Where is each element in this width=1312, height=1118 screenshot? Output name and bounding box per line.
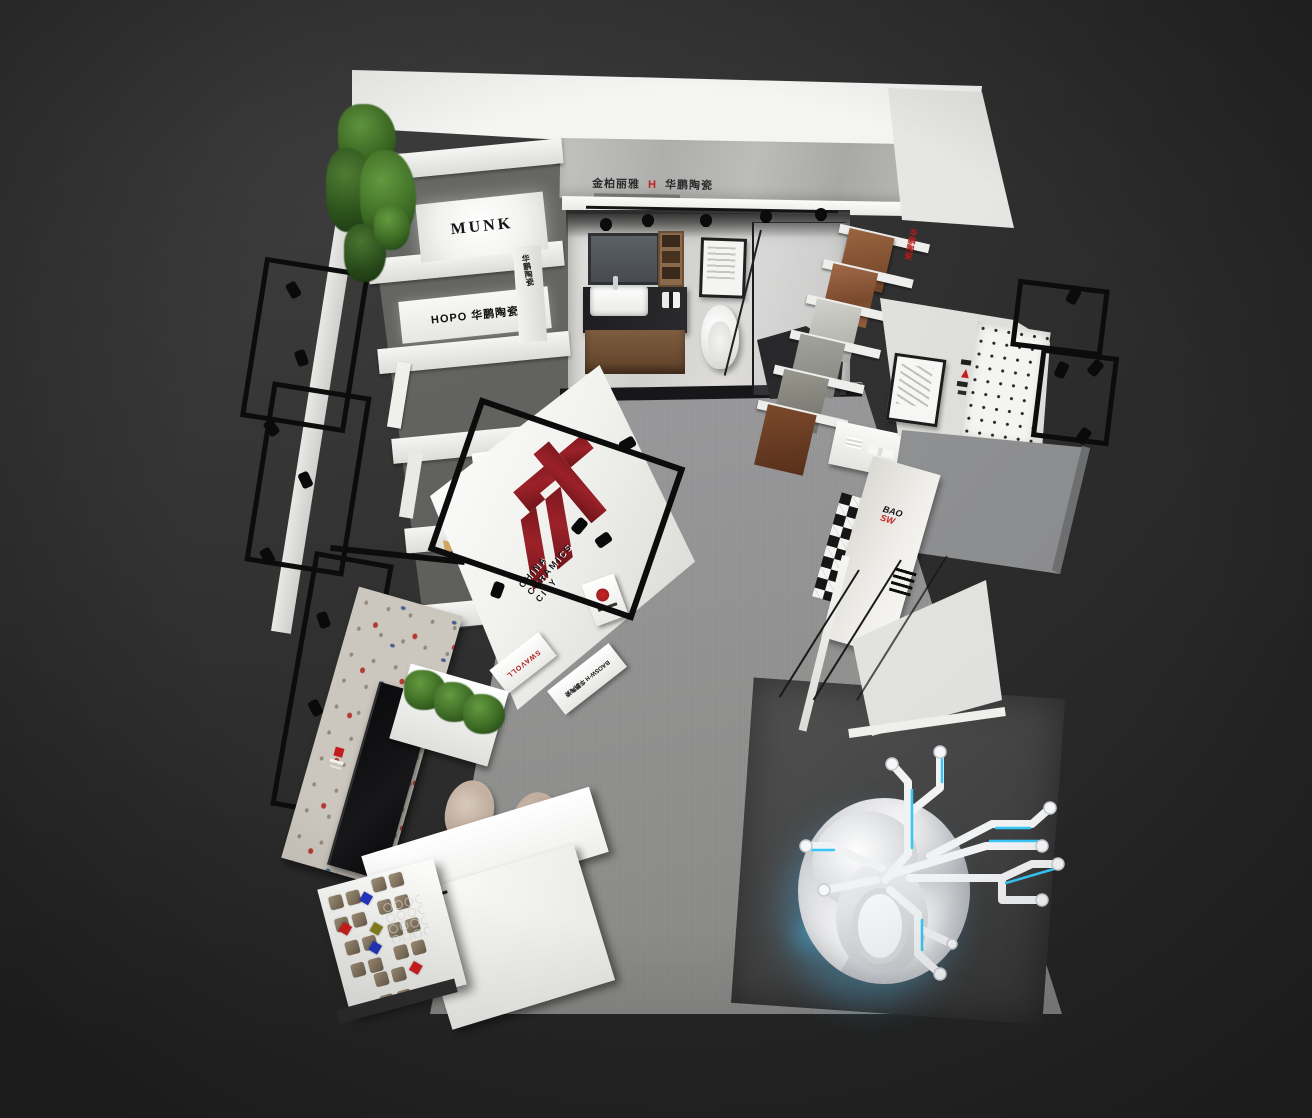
- wall-logo-bar: [330, 765, 341, 770]
- stone-tile: [409, 938, 429, 958]
- wall-logo-mark: [333, 747, 344, 758]
- vanity-basin: [590, 286, 648, 316]
- spotlight-can: [600, 218, 612, 230]
- vanity-mirror: [588, 233, 660, 285]
- header-sign: 金柏丽雅 H 华鹏陶瓷: [592, 175, 713, 193]
- spotlight-can: [700, 214, 712, 226]
- bathroom-framed-art: [699, 237, 747, 299]
- stone-tile: [349, 960, 369, 980]
- planter-plant: [463, 694, 505, 734]
- right-room-framed-art: [886, 353, 947, 428]
- vanity-shelf-cubbies: [658, 231, 684, 287]
- header-sign-right: 华鹏陶瓷: [665, 179, 713, 192]
- art-sketch: [896, 364, 933, 408]
- header-sign-left: 金柏丽雅: [592, 178, 640, 191]
- art-sketch: [707, 246, 736, 279]
- spotlight-can: [760, 210, 772, 222]
- track-light-rig: [1010, 279, 1110, 358]
- hanging-vine: [374, 204, 410, 250]
- cubby-cell: [662, 251, 680, 263]
- stone-tile: [369, 875, 389, 895]
- stone-tile: [350, 910, 370, 930]
- stone-tile: [326, 892, 346, 912]
- showroom-render: 金柏丽雅 H 华鹏陶瓷 MUNK: [0, 0, 1312, 1118]
- track-light-rig: [1031, 348, 1119, 447]
- pillar-vertical-text: 华鹏陶瓷: [520, 253, 536, 286]
- cubby-cell: [662, 235, 680, 247]
- stone-tile: [343, 938, 363, 958]
- stone-tile: [387, 870, 407, 890]
- branch-pipes: [790, 728, 1090, 988]
- toiletry-bottles: [662, 292, 680, 308]
- stone-tile: [391, 942, 411, 962]
- header-sign-mark: H: [648, 179, 657, 191]
- stone-tile: [389, 965, 409, 985]
- munk-sign-text: MUNK: [450, 215, 514, 239]
- faucet: [613, 276, 618, 290]
- stone-tile: [372, 969, 392, 989]
- hopo-sign-text: HOPO 华鹏陶瓷: [430, 302, 520, 327]
- bao-counter-text: BAO SW: [879, 505, 903, 528]
- cubby-cell: [662, 267, 680, 279]
- spotlight-can: [642, 214, 654, 226]
